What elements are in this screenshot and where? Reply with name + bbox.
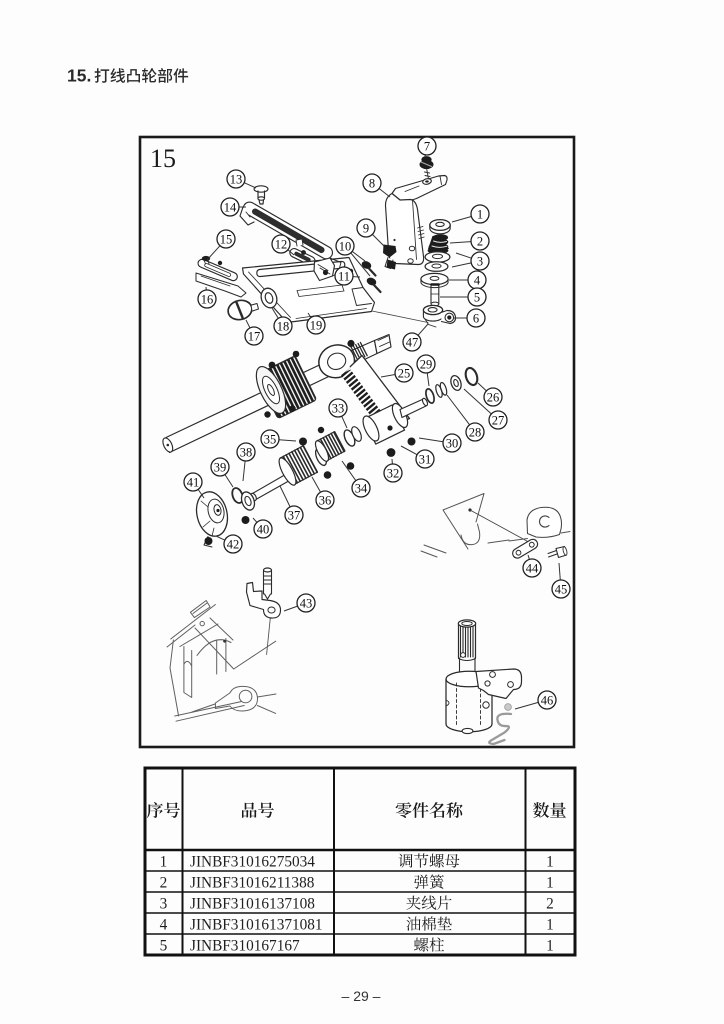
- svg-text:JINBF310161371081: JINBF310161371081: [190, 917, 323, 934]
- svg-text:5: 5: [160, 938, 168, 955]
- svg-text:31: 31: [419, 452, 432, 466]
- svg-text:7: 7: [424, 139, 430, 153]
- svg-text:– 29 –: – 29 –: [342, 988, 381, 1004]
- svg-text:32: 32: [387, 466, 400, 480]
- svg-text:JINBF31016275034: JINBF31016275034: [190, 854, 315, 871]
- svg-text:40: 40: [257, 522, 270, 536]
- svg-text:28: 28: [469, 425, 482, 439]
- svg-text:38: 38: [240, 445, 253, 459]
- svg-text:3: 3: [477, 254, 483, 268]
- svg-text:1: 1: [546, 854, 554, 871]
- svg-text:2: 2: [546, 896, 554, 913]
- svg-text:11: 11: [338, 269, 350, 283]
- svg-text:JINBF31016137108: JINBF31016137108: [190, 896, 315, 913]
- svg-text:27: 27: [492, 413, 505, 427]
- svg-text:41: 41: [187, 475, 200, 489]
- svg-text:15: 15: [220, 232, 233, 246]
- svg-text:43: 43: [300, 596, 313, 610]
- svg-text:9: 9: [363, 221, 369, 235]
- svg-text:47: 47: [406, 335, 419, 349]
- svg-text:4: 4: [474, 273, 481, 287]
- svg-text:2: 2: [160, 875, 168, 892]
- svg-text:30: 30: [446, 436, 459, 450]
- svg-text:17: 17: [248, 329, 261, 343]
- svg-text:14: 14: [224, 200, 237, 214]
- svg-text:1: 1: [160, 854, 168, 871]
- svg-text:39: 39: [214, 460, 227, 474]
- svg-text:5: 5: [474, 290, 480, 304]
- svg-text:8: 8: [369, 176, 375, 190]
- svg-text:34: 34: [355, 481, 368, 495]
- svg-text:36: 36: [319, 493, 332, 507]
- svg-text:JINBF310167167: JINBF310167167: [190, 938, 300, 955]
- svg-text:4: 4: [160, 917, 168, 934]
- svg-text:44: 44: [526, 561, 539, 575]
- svg-text:1: 1: [477, 207, 483, 221]
- svg-text:12: 12: [275, 237, 288, 251]
- svg-text:37: 37: [288, 508, 301, 522]
- svg-text:3: 3: [160, 896, 168, 913]
- svg-text:JINBF31016211388: JINBF31016211388: [190, 875, 315, 892]
- svg-text:2: 2: [477, 234, 483, 248]
- svg-text:15: 15: [150, 144, 176, 173]
- svg-text:33: 33: [332, 401, 345, 415]
- svg-text:35: 35: [264, 432, 277, 446]
- svg-text:6: 6: [473, 311, 479, 325]
- svg-text:26: 26: [487, 390, 500, 404]
- svg-text:10: 10: [339, 239, 352, 253]
- svg-text:13: 13: [230, 172, 243, 186]
- svg-text:1: 1: [546, 938, 554, 955]
- svg-text:46: 46: [541, 693, 554, 707]
- svg-text:42: 42: [227, 537, 240, 551]
- svg-text:45: 45: [555, 582, 568, 596]
- svg-text:19: 19: [310, 318, 323, 332]
- svg-text:18: 18: [277, 319, 290, 333]
- svg-text:16: 16: [201, 292, 214, 306]
- svg-text:1: 1: [546, 917, 554, 934]
- svg-text:1: 1: [546, 875, 554, 892]
- svg-text:29: 29: [420, 357, 433, 371]
- svg-text:25: 25: [398, 366, 411, 380]
- svg-text:15.: 15.: [67, 66, 91, 86]
